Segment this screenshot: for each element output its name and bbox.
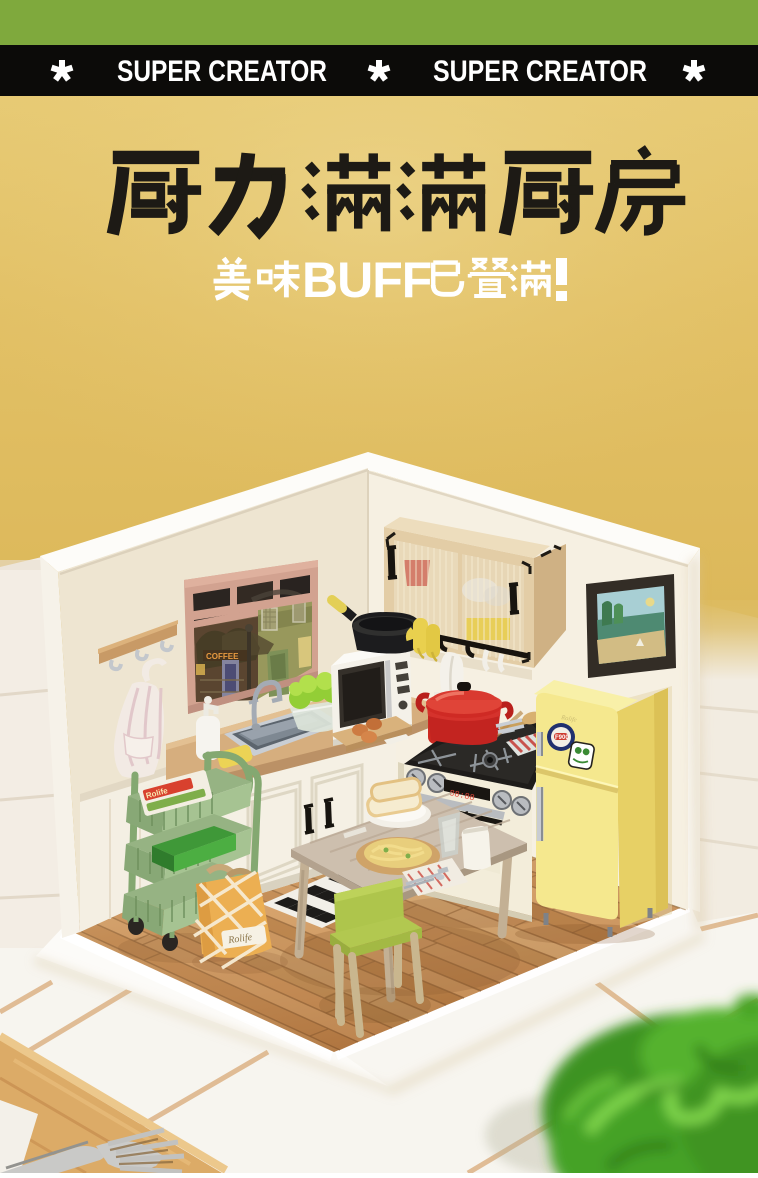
svg-text:F900: F900 — [555, 735, 569, 741]
svg-text:COFFEE: COFFEE — [206, 652, 239, 661]
svg-text:BUFF: BUFF — [302, 252, 431, 308]
svg-text:SUPER CREATOR: SUPER CREATOR — [117, 55, 327, 88]
svg-text:SUPER CREATOR: SUPER CREATOR — [433, 55, 647, 88]
